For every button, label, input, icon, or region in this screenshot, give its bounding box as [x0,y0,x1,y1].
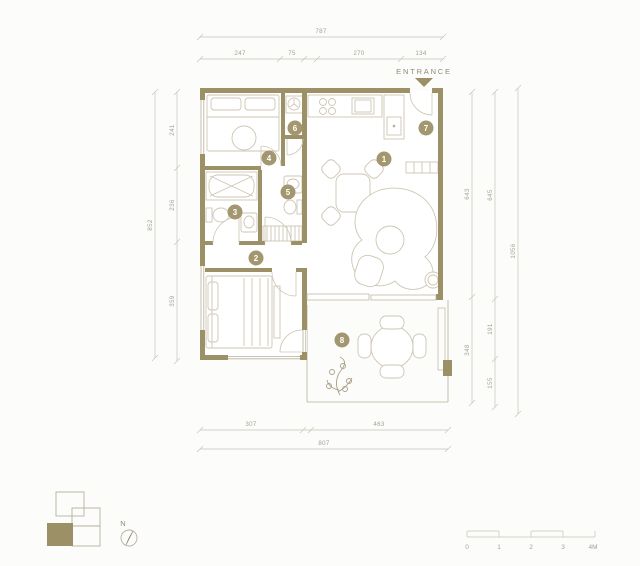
dim-right-mid1: 645 [487,189,494,201]
dim-top-seg1: 247 [234,50,246,57]
bed-master [206,276,280,348]
room-marker-2: 2 [249,251,264,266]
room-marker-7-label: 7 [424,124,429,133]
dim-right-mid3: 155 [487,377,494,389]
compass: N [120,519,137,546]
terrace-chair-icon [413,334,426,358]
dim-top-seg4: 134 [415,50,427,57]
room-marker-1-label: 1 [382,155,387,164]
bath-sink-icon [241,213,257,232]
dim-bottom-seg2: 463 [373,421,385,428]
dim-right-total: 1056 [510,243,517,258]
room-marker-8-label: 8 [340,336,345,345]
scale-label-1: 1 [497,544,501,551]
key-plan [47,492,100,546]
dim-left-seg2: 236 [169,199,176,211]
floor-plan-page: 1 2 3 4 5 6 7 8 ENTRANCE 787 247 75 270 … [0,0,640,566]
dimensions-top: 787 247 75 270 134 [197,28,446,62]
entrance-arrow-icon [415,78,433,87]
scale-label-0: 0 [465,544,469,551]
terrace-door-glass [307,294,369,300]
dimensions-right: 643 348 645 191 155 1056 [464,85,521,417]
room-marker-8: 8 [335,333,350,348]
room-marker-2-label: 2 [254,254,259,263]
toilet-icon [206,208,229,222]
room-marker-6-label: 6 [293,124,298,133]
bathtub-icon [206,172,257,200]
room-marker-4-label: 4 [267,154,272,163]
room-marker-5: 5 [281,185,296,200]
terrace-chair-icon [380,365,404,378]
dim-left-total: 852 [147,219,154,231]
dimensions-left: 852 241 236 359 [147,89,180,364]
entrance-label: ENTRANCE [396,67,452,87]
terrace-table-icon [371,326,413,368]
room-marker-4: 4 [262,151,277,166]
plant-icon [327,357,353,395]
dim-left-seg1: 241 [169,124,176,136]
terrace-wall-stub [443,360,452,376]
scale-label-3: 3 [561,544,565,551]
sofa [352,188,437,289]
dim-bottom-seg1: 307 [245,421,257,428]
dim-left-seg3: 359 [169,295,176,307]
bed-secondary [207,95,279,151]
dim-bottom-total: 807 [318,440,330,447]
room-marker-7: 7 [419,121,434,136]
north-arrow-icon [126,531,133,545]
dim-right-inner1: 643 [464,188,471,200]
terrace [307,300,448,402]
floor-plan-drawing: 1 2 3 4 5 6 7 8 ENTRANCE 787 247 75 270 … [0,0,640,566]
coffee-table-icon [376,226,404,254]
washing-machine-icon [286,96,303,113]
room-marker-5-label: 5 [286,188,291,197]
terrace-door-glass [371,295,436,300]
wardrobe-icon [263,226,302,241]
dim-right-mid2: 191 [487,323,494,335]
room-marker-3: 3 [228,205,243,220]
room-marker-3-label: 3 [233,208,238,217]
scale-bar: 0 1 2 3 4M [465,531,597,551]
entrance-text: ENTRANCE [396,67,452,76]
room-marker-1: 1 [377,152,392,167]
dimensions-bottom: 307 463 807 [197,421,451,452]
scale-label-4: 4M [588,544,597,551]
room-marker-6: 6 [288,121,303,136]
key-plan-unit-highlight [47,523,73,546]
dim-top-seg3: 270 [353,50,365,57]
wc-toilet-icon [284,200,302,214]
dim-top-seg2: 75 [288,50,296,57]
dim-right-inner2: 348 [464,344,471,356]
dim-top-total: 787 [315,28,327,35]
terrace-chair-icon [358,334,371,358]
north-label: N [120,519,125,528]
terrace-chair-icon [380,316,404,329]
scale-label-2: 2 [529,544,533,551]
